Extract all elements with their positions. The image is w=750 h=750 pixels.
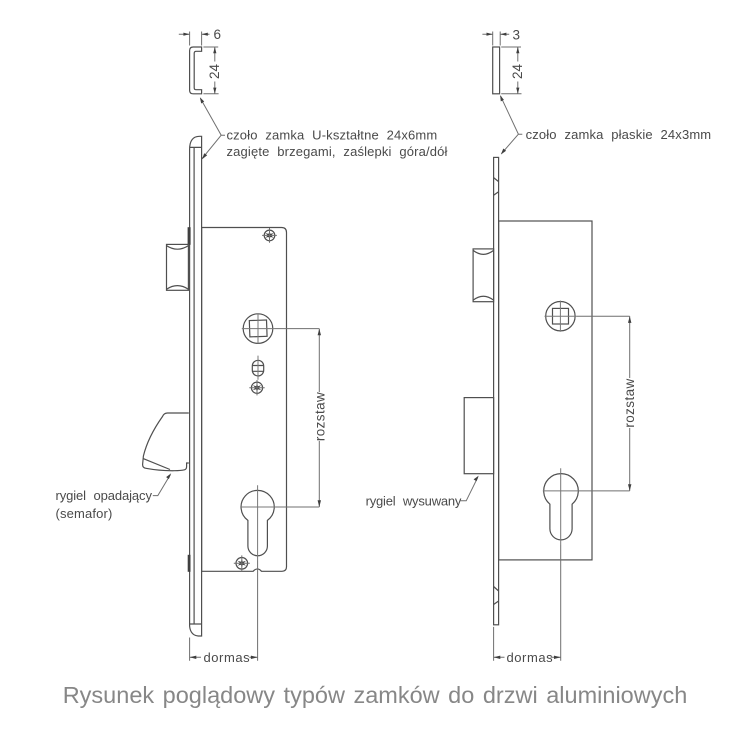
svg-text:dormas: dormas <box>204 650 251 665</box>
svg-text:Rysunek poglądowy typów zamków: Rysunek poglądowy typów zamków do drzwi … <box>63 682 688 708</box>
svg-text:czoło zamka U-kształtne 24x6mm: czoło zamka U-kształtne 24x6mm <box>227 127 438 142</box>
svg-text:(semafor): (semafor) <box>56 506 113 521</box>
svg-text:rozstaw: rozstaw <box>312 392 327 441</box>
svg-text:dormas: dormas <box>507 650 554 665</box>
svg-text:6: 6 <box>214 27 222 42</box>
svg-text:rygiel opadający: rygiel opadający <box>56 488 153 503</box>
svg-text:3: 3 <box>513 28 521 43</box>
svg-text:rozstaw: rozstaw <box>622 378 637 427</box>
svg-text:czoło zamka płaskie 24x3mm: czoło zamka płaskie 24x3mm <box>526 127 712 142</box>
svg-text:24: 24 <box>510 64 525 80</box>
svg-text:24: 24 <box>207 64 222 80</box>
svg-text:rygiel wysuwany: rygiel wysuwany <box>366 494 462 509</box>
svg-text:zagięte brzegami, zaślepki gór: zagięte brzegami, zaślepki góra/dół <box>227 144 448 159</box>
